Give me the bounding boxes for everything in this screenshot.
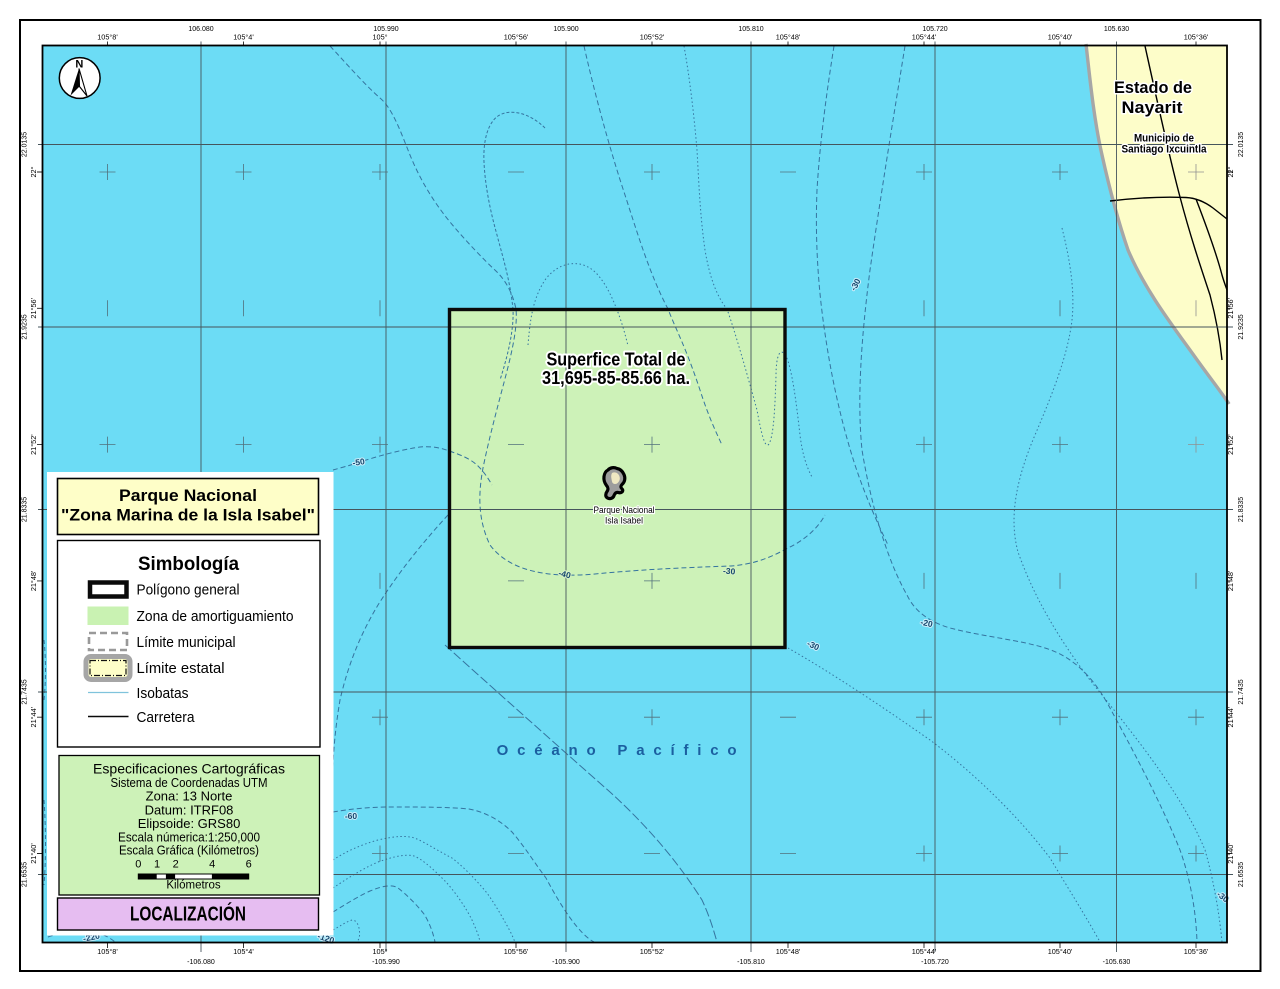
svg-text:105°4': 105°4' (233, 33, 254, 42)
svg-text:21°40': 21°40' (29, 843, 38, 864)
svg-text:105°56': 105°56' (504, 947, 529, 956)
svg-text:Isobatas: Isobatas (137, 685, 189, 702)
svg-text:-50: -50 (352, 456, 366, 468)
svg-text:21°56': 21°56' (29, 297, 38, 318)
svg-text:21°44': 21°44' (29, 706, 38, 727)
svg-text:21.6535: 21.6535 (22, 862, 29, 887)
svg-text:21.8335: 21.8335 (1238, 497, 1245, 522)
svg-text:105°4': 105°4' (233, 947, 254, 956)
svg-text:106.080: 106.080 (188, 26, 213, 33)
svg-text:LOCALIZACIÓN: LOCALIZACIÓN (130, 902, 246, 926)
svg-text:Polígono general: Polígono general (137, 582, 240, 599)
svg-text:Parque Nacional: Parque Nacional (594, 505, 655, 515)
svg-text:Zona de amortiguamiento: Zona de amortiguamiento (137, 608, 294, 625)
svg-text:105°36': 105°36' (1184, 33, 1209, 42)
svg-text:21°48': 21°48' (29, 570, 38, 591)
svg-text:22°: 22° (1226, 166, 1235, 177)
svg-text:21.7435: 21.7435 (22, 679, 29, 704)
svg-text:105°: 105° (372, 33, 387, 42)
svg-text:105°48': 105°48' (776, 947, 801, 956)
svg-text:21.8335: 21.8335 (22, 497, 29, 522)
svg-text:Nayarit: Nayarit (1122, 98, 1183, 117)
svg-text:Santiago Ixcuintla: Santiago Ixcuintla (1122, 144, 1208, 156)
svg-text:105°40': 105°40' (1048, 947, 1073, 956)
svg-text:Isla Isabel: Isla Isabel (605, 516, 643, 526)
svg-text:21°44': 21°44' (1226, 706, 1235, 727)
svg-text:105°52': 105°52' (640, 33, 665, 42)
svg-text:105.900: 105.900 (553, 26, 578, 33)
svg-text:105°: 105° (372, 947, 387, 956)
svg-text:21.9235: 21.9235 (22, 314, 29, 339)
svg-text:Límite municipal: Límite municipal (137, 634, 236, 651)
svg-text:21°48': 21°48' (1226, 570, 1235, 591)
svg-text:Océano Pacífico: Océano Pacífico (497, 742, 746, 759)
svg-text:"Zona Marina de la Isla Isabel: "Zona Marina de la Isla Isabel" (61, 506, 315, 525)
svg-text:-60: -60 (345, 811, 358, 821)
svg-text:-105.900: -105.900 (552, 959, 580, 966)
svg-text:21°56': 21°56' (1226, 297, 1235, 318)
svg-text:105°52': 105°52' (640, 947, 665, 956)
svg-text:31,695-85-85.66 ha.: 31,695-85-85.66 ha. (542, 367, 690, 388)
svg-text:1: 1 (154, 859, 160, 871)
svg-text:22.0135: 22.0135 (22, 132, 29, 157)
svg-text:2: 2 (173, 859, 179, 871)
svg-text:105°44': 105°44' (912, 33, 937, 42)
svg-text:-106.080: -106.080 (187, 959, 215, 966)
svg-text:105°56': 105°56' (504, 33, 529, 42)
svg-text:Estado de: Estado de (1114, 78, 1192, 97)
svg-text:4: 4 (209, 859, 215, 871)
svg-text:-30: -30 (723, 566, 736, 577)
svg-text:Kilómetros: Kilómetros (166, 880, 221, 892)
svg-text:21°52': 21°52' (29, 434, 38, 455)
svg-text:6: 6 (246, 859, 252, 871)
svg-text:Límite estatal: Límite estatal (137, 660, 225, 677)
svg-text:105.630: 105.630 (1104, 26, 1129, 33)
svg-text:21.6535: 21.6535 (1238, 862, 1245, 887)
svg-text:21°40': 21°40' (1226, 843, 1235, 864)
svg-text:105°48': 105°48' (776, 33, 801, 42)
svg-text:21.7435: 21.7435 (1238, 679, 1245, 704)
svg-text:21°52': 21°52' (1226, 434, 1235, 455)
svg-text:105°8': 105°8' (97, 33, 118, 42)
svg-text:-105.720: -105.720 (921, 959, 949, 966)
svg-text:-105.810: -105.810 (737, 959, 765, 966)
svg-text:-105.630: -105.630 (1103, 959, 1131, 966)
svg-text:21.9235: 21.9235 (1238, 314, 1245, 339)
svg-text:22.0135: 22.0135 (1238, 132, 1245, 157)
svg-text:Carretera: Carretera (137, 709, 196, 726)
svg-text:22°: 22° (29, 166, 38, 177)
svg-text:105°40': 105°40' (1048, 33, 1073, 42)
svg-text:105°44': 105°44' (912, 947, 937, 956)
svg-text:105°36': 105°36' (1184, 947, 1209, 956)
svg-text:Simbología: Simbología (138, 554, 239, 575)
svg-text:Escala Gráfica (Kilómetros): Escala Gráfica (Kilómetros) (119, 843, 259, 858)
svg-text:Parque Nacional: Parque Nacional (119, 486, 257, 505)
svg-text:105°8': 105°8' (97, 947, 118, 956)
svg-text:105.810: 105.810 (738, 26, 763, 33)
svg-text:0: 0 (135, 859, 141, 871)
svg-text:-105.990: -105.990 (372, 959, 400, 966)
